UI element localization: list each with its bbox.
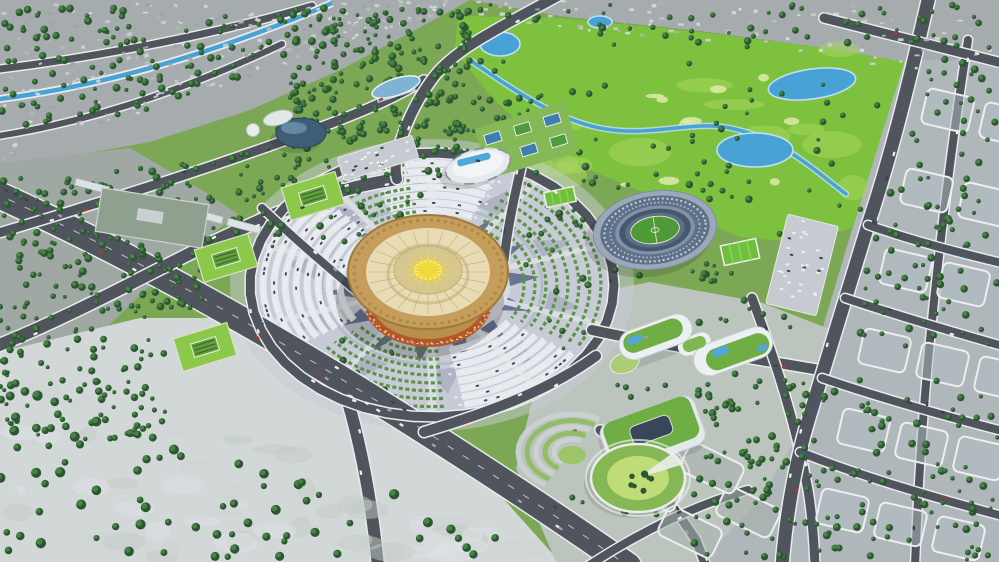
car	[913, 526, 915, 530]
car	[926, 402, 929, 407]
masterplan-aerial-view: Aerial 3D masterplan rendering of a spor…	[0, 0, 999, 562]
aerial-render-canvas	[0, 0, 999, 562]
golf-pond	[717, 133, 793, 167]
terraced-round-building	[584, 440, 690, 518]
car	[609, 279, 612, 284]
